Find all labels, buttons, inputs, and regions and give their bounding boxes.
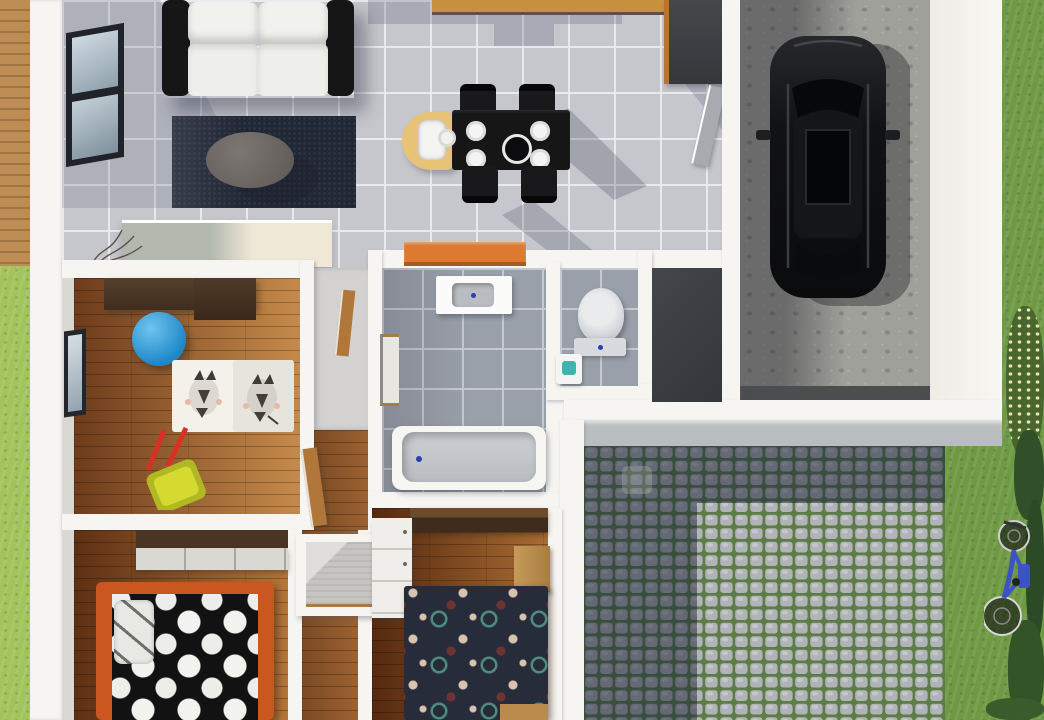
bathtub-basin (402, 432, 536, 482)
bedroom2-duvet-pattern (404, 586, 548, 720)
dining-chair (521, 166, 557, 203)
plate (530, 121, 550, 141)
kids-window-glass (68, 334, 82, 412)
wood-deck (0, 0, 32, 272)
sink-drain (471, 293, 476, 298)
wall (546, 384, 652, 400)
floor-plan-render (0, 0, 1044, 720)
toilet-bowl (578, 288, 624, 342)
sofa (162, 0, 354, 98)
storage-room-floor (652, 268, 722, 402)
bedroom2-wardrobe (410, 508, 548, 532)
wall (62, 512, 314, 530)
grass-strip-left (0, 266, 33, 720)
cobblestone-patio (584, 446, 945, 720)
living-window-glass (72, 94, 118, 160)
orange-bench (404, 242, 526, 266)
bedroom1-pillow (114, 600, 154, 664)
bathroom-mirror (380, 334, 399, 406)
hall-closet (296, 534, 382, 616)
toy-wheelbarrow (126, 424, 210, 510)
plate (466, 121, 486, 141)
sofa-arm-left (162, 0, 190, 96)
bedroom1-wall-shade (62, 530, 74, 720)
blue-bicycle (984, 512, 1040, 652)
wc-washbasin-bowl (562, 361, 576, 375)
bush (986, 698, 1044, 720)
sofa-arm-right (326, 0, 354, 96)
zebra-rug (172, 360, 294, 432)
sofa-back-cushion (258, 2, 328, 44)
sofa-back-cushion (188, 2, 258, 44)
bedroom1-wardrobe-front (136, 548, 288, 570)
wall-garage-right (930, 0, 1004, 422)
living-window (66, 23, 124, 167)
dining-chair (462, 166, 498, 203)
toilet-flush-button (598, 345, 603, 350)
kitchen-counter (432, 0, 668, 15)
sofa-seat-cushion (188, 44, 258, 96)
dresser-handle (403, 530, 407, 534)
coffee-table (206, 132, 294, 188)
dresser-handle (403, 562, 407, 566)
garage-threshold (740, 386, 930, 400)
kids-wardrobe (194, 278, 256, 320)
blue-gym-ball (132, 312, 186, 366)
wall (638, 250, 652, 402)
car-black-suv (754, 26, 910, 316)
patio-ledge (578, 420, 1008, 446)
wall (62, 260, 314, 278)
kids-window (64, 328, 86, 417)
bathtub-drain (416, 456, 422, 462)
wc-washbasin (556, 354, 582, 384)
sofa-seat-cushion (258, 44, 328, 96)
wall-patio-left (560, 420, 584, 720)
wall-south (564, 400, 1008, 420)
bedroom1-wardrobe-top (136, 530, 288, 548)
vanity-sink (436, 276, 512, 314)
exterior-wall-left (30, 0, 64, 720)
wall-house-east (722, 0, 740, 422)
toilet-tank (574, 338, 626, 356)
hall-closet-interior (306, 542, 374, 607)
high-chair-tray (438, 129, 456, 147)
bedroom2-footboard (500, 704, 548, 720)
centerpiece-bowl (502, 134, 532, 164)
living-window-glass (72, 30, 118, 94)
tall-cabinet-fridge (664, 0, 727, 84)
wall (548, 508, 562, 720)
bathtub (392, 426, 546, 490)
